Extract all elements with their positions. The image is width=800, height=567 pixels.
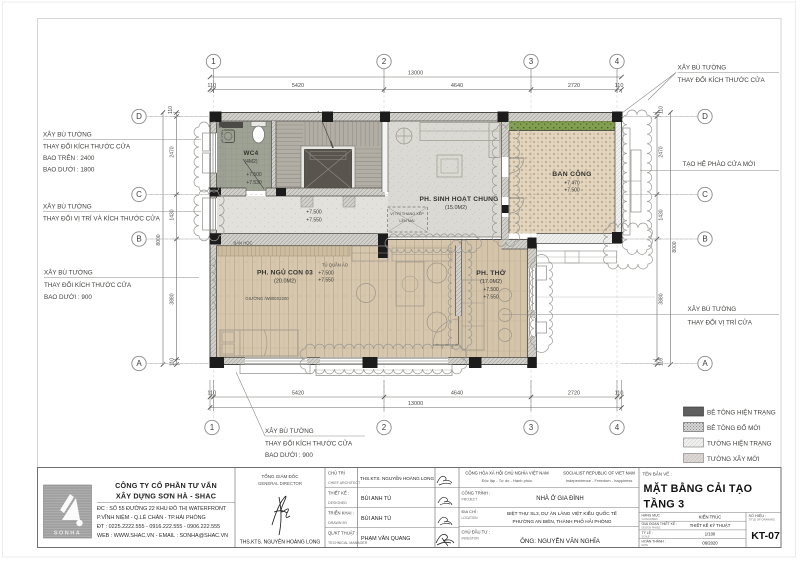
svg-text:5420: 5420 <box>292 391 304 397</box>
svg-text:THAY ĐỔI KÍCH THƯỚC CỬA: THAY ĐỔI KÍCH THƯỚC CỬA <box>44 280 132 289</box>
svg-text:XÂY DỰNG SƠN HÀ - SHAC: XÂY DỰNG SƠN HÀ - SHAC <box>116 492 216 501</box>
svg-text:2470: 2470 <box>170 146 176 157</box>
svg-text:PH. THỜ: PH. THỜ <box>476 268 505 277</box>
svg-text:CÔNG TY CỔ PHẦN TƯ VẤN: CÔNG TY CỔ PHẦN TƯ VẤN <box>115 480 217 490</box>
svg-text:XÂY BÙ TƯỜNG: XÂY BÙ TƯỜNG <box>265 426 314 435</box>
svg-text:P.VĨNH NIỆM - Q.LÊ CHÂN - TP.H: P.VĨNH NIỆM - Q.LÊ CHÂN - TP.HẢI PHÒNG <box>97 513 206 521</box>
svg-text:(15.0M2): (15.0M2) <box>445 205 467 211</box>
svg-text:110: 110 <box>615 83 624 89</box>
svg-text:ĐT : 0225.2222.555 - 0916.222.: ĐT : 0225.2222.555 - 0916.222.555 - 0906… <box>97 524 220 530</box>
svg-text:ÔNG: NGUYỄN VĂN NGHĨA: ÔNG: NGUYỄN VĂN NGHĨA <box>520 538 601 545</box>
svg-text:GIƯỜNG /W800X2200: GIƯỜNG /W800X2200 <box>245 296 289 301</box>
svg-text:THAY ĐỔI KÍCH THƯỚC CỬA: THAY ĐỔI KÍCH THƯỚC CỬA <box>43 142 131 151</box>
svg-text:DATE: DATE <box>642 544 649 547</box>
svg-text:PH. SINH HOẠT CHUNG: PH. SINH HOẠT CHUNG <box>420 196 499 203</box>
svg-text:1: 1 <box>211 57 216 66</box>
svg-text:BÊ TÔNG HIỆN TRẠNG: BÊ TÔNG HIỆN TRẠNG <box>707 408 776 417</box>
svg-text:A: A <box>136 359 142 368</box>
svg-text:CHỦ ĐẦU TƯ :: CHỦ ĐẦU TƯ : <box>462 530 491 535</box>
svg-text:BAO DƯỚI : 900: BAO DƯỚI : 900 <box>44 292 92 301</box>
svg-text:PH. NGỦ CON 03: PH. NGỦ CON 03 <box>257 268 313 277</box>
svg-text:CÔNG TRÌNH :: CÔNG TRÌNH : <box>462 491 491 496</box>
svg-text:110: 110 <box>207 391 216 397</box>
svg-text:2: 2 <box>382 57 387 66</box>
svg-text:INVESTOR: INVESTOR <box>462 537 480 541</box>
svg-text:THIẾT KẾ :: THIẾT KẾ : <box>328 491 349 496</box>
svg-text:110: 110 <box>659 106 665 114</box>
svg-text:TƯỜNG HIỆN TRẠNG: TƯỜNG HIỆN TRẠNG <box>707 439 772 448</box>
svg-text:3: 3 <box>529 57 534 66</box>
svg-text:4: 4 <box>615 57 620 66</box>
svg-text:3880: 3880 <box>170 293 176 304</box>
svg-text:DRAWN BY: DRAWN BY <box>328 521 348 525</box>
svg-text:110: 110 <box>659 358 665 366</box>
svg-text:2470: 2470 <box>659 146 665 157</box>
svg-text:(4M2): (4M2) <box>244 159 257 165</box>
svg-text:BÙI ANH TÚ: BÙI ANH TÚ <box>361 495 391 502</box>
svg-text:+7.550: +7.550 <box>306 218 322 224</box>
svg-text:THS.KTS. NGUYỄN HOÀNG LONG: THS.KTS. NGUYỄN HOÀNG LONG <box>360 475 434 481</box>
svg-text:4640: 4640 <box>451 391 463 397</box>
svg-text:BAN CÔNG: BAN CÔNG <box>552 169 591 178</box>
svg-text:THIẾT KẾ KỸ THUẬT: THIẾT KẾ KỸ THUẬT <box>690 523 731 528</box>
svg-text:1/100: 1/100 <box>705 532 716 537</box>
svg-text:D: D <box>136 112 142 121</box>
svg-text:CỘNG HÒA XÃ HỘI CHỦ NGHĨA VIỆT: CỘNG HÒA XÃ HỘI CHỦ NGHĨA VIỆT NAM <box>465 471 549 476</box>
svg-text:SONHA: SONHA <box>54 531 81 537</box>
svg-text:XÂY BÙ TƯỜNG: XÂY BÙ TƯỜNG <box>44 268 93 277</box>
svg-text:DESIGNED: DESIGNED <box>328 501 347 505</box>
svg-text:TƯỜNG XÂY MỚI: TƯỜNG XÂY MỚI <box>707 454 760 463</box>
svg-text:SCALE: SCALE <box>642 535 651 538</box>
svg-text:110: 110 <box>615 391 624 397</box>
svg-text:Độc lập - Tự do - Hạnh phúc: Độc lập - Tự do - Hạnh phúc <box>482 478 533 483</box>
svg-text:4640: 4640 <box>451 83 463 89</box>
svg-text:BAO DƯỚI : 900: BAO DƯỚI : 900 <box>265 450 313 459</box>
svg-text:PROJECT: PROJECT <box>462 498 478 502</box>
svg-text:110: 110 <box>170 358 176 366</box>
svg-text:13000: 13000 <box>408 71 423 77</box>
svg-text:XÂY BÙ TƯỜNG: XÂY BÙ TƯỜNG <box>43 202 92 211</box>
svg-text:SOCIALIST REPUBLIC OF VIET NAM: SOCIALIST REPUBLIC OF VIET NAM <box>563 471 635 476</box>
svg-text:KT-07: KT-07 <box>751 530 780 542</box>
svg-text:+7.550: +7.550 <box>318 278 334 284</box>
svg-text:+7.500: +7.500 <box>318 271 334 277</box>
svg-text:5420: 5420 <box>292 83 304 89</box>
svg-text:THAY ĐỔI VỊ TRÍ VÀ KÍCH THƯỚC: THAY ĐỔI VỊ TRÍ VÀ KÍCH THƯỚC CỬA <box>43 214 161 223</box>
svg-text:110: 110 <box>207 83 216 89</box>
svg-text:LOCATION: LOCATION <box>462 516 479 520</box>
svg-text:THS.KTS. NGUYỄN HOÀNG LONG: THS.KTS. NGUYỄN HOÀNG LONG <box>240 539 321 546</box>
svg-text:TRIỂN KHAI :: TRIỂN KHAI : <box>328 511 354 516</box>
svg-text:TÊN BẢN VẼ :: TÊN BẢN VẼ : <box>643 470 672 477</box>
svg-text:HOÀN THÀNH :: HOÀN THÀNH : <box>642 540 666 544</box>
svg-text:+7.500: +7.500 <box>483 287 499 293</box>
svg-text:PHƯỜNG AN BIÊN, THÀNH PHỐ HẢI: PHƯỜNG AN BIÊN, THÀNH PHỐ HẢI PHÒNG <box>512 517 611 524</box>
svg-text:BÀN HỌC: BÀN HỌC <box>233 240 252 245</box>
svg-text:C: C <box>136 190 142 199</box>
svg-text:DESIGN PHASE: DESIGN PHASE <box>642 527 661 530</box>
svg-text:ĐỊA CHỈ :: ĐỊA CHỈ : <box>462 509 479 514</box>
svg-text:PHẠM VĂN QUANG: PHẠM VĂN QUANG <box>361 535 410 542</box>
svg-text:WC4: WC4 <box>244 150 259 157</box>
svg-text:2720: 2720 <box>568 83 580 89</box>
svg-text:HẠNG MỤC :: HẠNG MỤC : <box>642 514 662 518</box>
svg-text:4: 4 <box>615 423 620 432</box>
svg-text:WEB : WWW.SHAC.VN - EMAIL : SO: WEB : WWW.SHAC.VN - EMAIL : SONHA@SHAC.V… <box>97 533 228 539</box>
svg-text:QL/KT THUẬT :: QL/KT THUẬT : <box>328 531 357 536</box>
svg-text:MẶT BẰNG CẢI TẠO: MẶT BẰNG CẢI TẠO <box>644 482 753 495</box>
svg-text:THAY ĐỔI VỊ TRÍ CỬA: THAY ĐỔI VỊ TRÍ CỬA <box>688 318 753 327</box>
svg-text:GIAI ĐOẠN THIẾT KẾ :: GIAI ĐOẠN THIẾT KẾ : <box>642 521 678 526</box>
svg-text:BÙI ANH TÚ: BÙI ANH TÚ <box>361 515 391 522</box>
svg-text:8000: 8000 <box>156 234 162 245</box>
svg-text:LÊN MÁI: LÊN MÁI <box>399 218 414 223</box>
svg-text:+7.500: +7.500 <box>564 188 580 194</box>
svg-text:2720: 2720 <box>568 391 580 397</box>
svg-text:(20.0M2): (20.0M2) <box>274 279 296 285</box>
svg-text:1: 1 <box>210 423 215 432</box>
svg-text:+7.530: +7.530 <box>246 180 262 186</box>
svg-text:TẦNG 3: TẦNG 3 <box>644 498 685 511</box>
svg-text:NHÀ Ở GIA ĐÌNH: NHÀ Ở GIA ĐÌNH <box>536 495 583 502</box>
svg-text:TỦ QUẦN ÁO: TỦ QUẦN ÁO <box>322 263 349 268</box>
svg-text:BIỆT THỰ SL3, DỰ ÁN LÀNG VIỆT: BIỆT THỰ SL3, DỰ ÁN LÀNG VIỆT KIỀU QUỐC … <box>507 509 617 516</box>
svg-text:THAY ĐỔI KÍCH THƯỚC CỬA: THAY ĐỔI KÍCH THƯỚC CỬA <box>678 75 766 84</box>
svg-text:+7.550: +7.550 <box>483 295 499 301</box>
svg-text:+7.500: +7.500 <box>246 172 262 178</box>
svg-text:3: 3 <box>529 423 534 432</box>
svg-text:XÂY BÙ TƯỜNG: XÂY BÙ TƯỜNG <box>678 63 727 72</box>
svg-text:KIẾN TRÚC: KIẾN TRÚC <box>699 514 722 519</box>
svg-text:06/2020: 06/2020 <box>702 540 718 545</box>
svg-text:+7.500: +7.500 <box>306 210 322 216</box>
svg-text:13000: 13000 <box>408 401 423 407</box>
svg-text:CHỦ TRÌ: CHỦ TRÌ <box>328 471 345 476</box>
svg-text:VỊ TRÍ THANG XẾP: VỊ TRÍ THANG XẾP <box>390 211 424 216</box>
svg-text:D: D <box>702 112 708 121</box>
svg-text:TỶ LỆ :: TỶ LỆ : <box>642 530 653 535</box>
svg-text:B: B <box>702 235 707 244</box>
svg-text:110: 110 <box>168 106 174 114</box>
svg-text:BAO DƯỚI : 1800: BAO DƯỚI : 1800 <box>43 165 95 174</box>
svg-text:Independence - Freedom - happi: Independence - Freedom - happiness <box>566 478 633 483</box>
svg-text:TITLE OF DRAWING: TITLE OF DRAWING <box>749 518 775 522</box>
svg-text:GENERAL DIRECTOR: GENERAL DIRECTOR <box>258 481 302 486</box>
svg-text:CATEGORIES: CATEGORIES <box>642 518 659 521</box>
svg-text:THAY ĐỔI KÍCH THƯỚC CỬA: THAY ĐỔI KÍCH THƯỚC CỬA <box>265 439 353 448</box>
svg-text:BÊ TÔNG ĐỔ MỚI: BÊ TÔNG ĐỔ MỚI <box>707 423 761 432</box>
svg-text:C: C <box>702 190 708 199</box>
svg-text:+7.470: +7.470 <box>564 181 580 187</box>
svg-text:BAO TRÊN : 2400: BAO TRÊN : 2400 <box>43 153 95 162</box>
svg-text:B: B <box>136 235 141 244</box>
svg-text:A: A <box>702 359 708 368</box>
svg-text:2: 2 <box>382 423 387 432</box>
svg-text:(17.0M2): (17.0M2) <box>480 279 502 285</box>
svg-text:1430: 1430 <box>659 209 665 220</box>
svg-text:XÂY BÙ TƯỜNG: XÂY BÙ TƯỜNG <box>43 130 92 139</box>
svg-text:3880: 3880 <box>659 293 665 304</box>
svg-text:TỔNG GIÁM ĐỐC: TỔNG GIÁM ĐỐC <box>262 473 300 479</box>
svg-text:TẠO HỆ PHÀO CỬA MỚI: TẠO HỆ PHÀO CỬA MỚI <box>683 159 756 168</box>
svg-text:1430: 1430 <box>170 209 176 220</box>
svg-text:XÂY BÙ TƯỜNG: XÂY BÙ TƯỜNG <box>688 304 737 313</box>
svg-text:ĐC : SỐ 55 ĐƯỜNG 22 KHU ĐÔ THỊ: ĐC : SỐ 55 ĐƯỜNG 22 KHU ĐÔ THỊ WATERFRON… <box>97 505 227 512</box>
svg-text:8000: 8000 <box>672 241 678 252</box>
svg-text:CHIEF ARCHITECT: CHIEF ARCHITECT <box>328 481 361 485</box>
